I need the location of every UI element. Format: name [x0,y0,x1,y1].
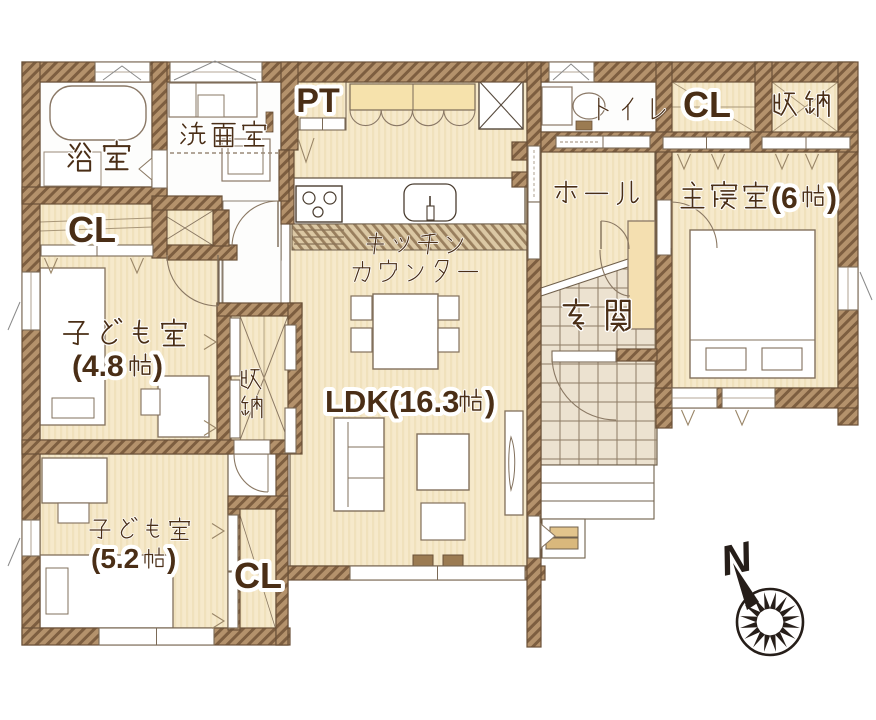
svg-text:): ) [167,543,176,574]
svg-text:(4.8: (4.8 [72,350,124,383]
svg-text:): ) [485,384,495,419]
svg-text:CL: CL [234,555,282,596]
svg-text:CL: CL [683,84,731,125]
svg-text:): ) [153,350,163,383]
svg-text:PT: PT [296,82,340,120]
svg-text:CL: CL [68,209,116,250]
svg-text:): ) [827,182,837,215]
svg-text:(6: (6 [771,182,798,215]
svg-text:LDK(16.3: LDK(16.3 [325,384,459,419]
svg-text:(5.2: (5.2 [91,543,139,574]
